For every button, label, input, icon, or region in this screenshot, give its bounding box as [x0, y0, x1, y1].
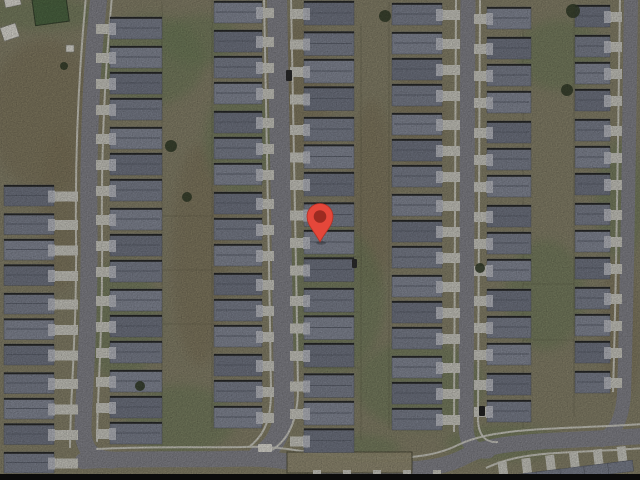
bottom-bar — [0, 474, 640, 480]
marker-pin-hole — [314, 210, 327, 223]
map-svg — [0, 0, 640, 480]
marker-shadow — [316, 241, 326, 245]
satellite-map[interactable] — [0, 0, 640, 480]
